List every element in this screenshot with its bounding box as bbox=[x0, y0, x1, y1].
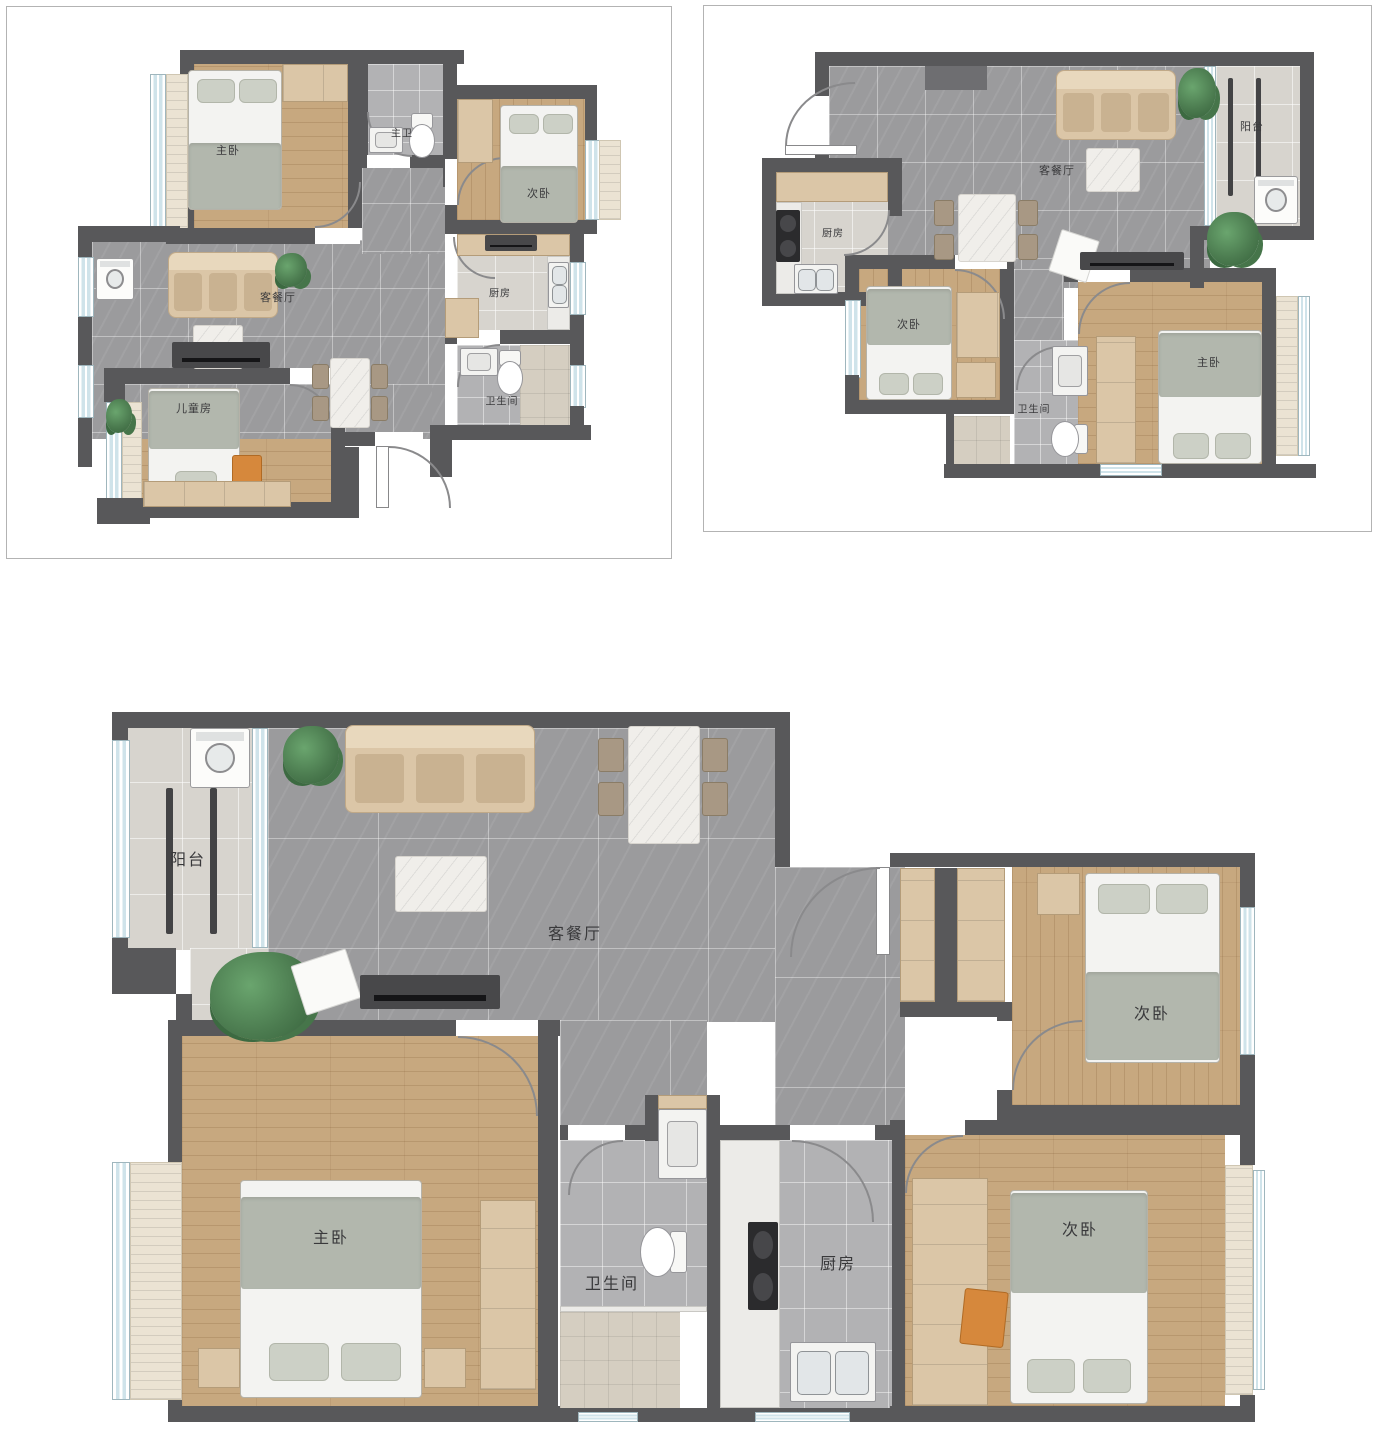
wardrobe-master bbox=[282, 64, 348, 102]
pillow bbox=[1215, 433, 1251, 459]
sofa-cushion bbox=[1138, 93, 1169, 132]
room-label-master: 主卧 bbox=[216, 142, 240, 158]
wall bbox=[168, 1036, 182, 1162]
stove bbox=[776, 210, 800, 262]
pillow bbox=[509, 114, 539, 134]
floor-plan-bottom: 阳台 客餐厅 主卧 卫生间 厨房 次卧 次卧 bbox=[0, 560, 1374, 1444]
floor-corridor bbox=[1014, 269, 1064, 351]
stove bbox=[485, 235, 537, 251]
wall bbox=[888, 172, 902, 216]
window-second-top bbox=[1240, 907, 1255, 1055]
wall bbox=[775, 853, 790, 867]
orange-chair bbox=[959, 1288, 1009, 1348]
wall bbox=[890, 853, 1255, 867]
room-label-bath: 卫生间 bbox=[1018, 401, 1051, 416]
wall bbox=[430, 425, 591, 440]
door-gap-bath bbox=[568, 1125, 625, 1140]
pillow bbox=[341, 1343, 401, 1381]
room-label-master-bath: 主卫 bbox=[391, 125, 413, 140]
room-label-kitchen: 厨房 bbox=[820, 1250, 856, 1274]
wall bbox=[890, 1406, 1255, 1422]
pillow bbox=[197, 79, 235, 103]
entry-door-arc bbox=[785, 82, 855, 146]
window-bath bbox=[1100, 464, 1162, 476]
kitchen-sink bbox=[790, 1342, 876, 1402]
bench-kids bbox=[143, 481, 291, 507]
dining-chair bbox=[934, 234, 954, 260]
door-gap-master bbox=[456, 1020, 540, 1036]
wall bbox=[1262, 268, 1276, 464]
sofa-back bbox=[346, 726, 534, 748]
window-bath bbox=[570, 365, 586, 408]
nightstand bbox=[1037, 873, 1080, 915]
dining-table bbox=[958, 194, 1016, 262]
stove bbox=[748, 1222, 778, 1310]
kitchen-sink bbox=[794, 264, 838, 294]
sofa-cushion bbox=[355, 754, 404, 804]
dining-chair bbox=[702, 738, 728, 772]
wall bbox=[707, 1095, 720, 1408]
window-master-bay bbox=[112, 1162, 130, 1400]
dining-table bbox=[628, 726, 700, 844]
wall bbox=[890, 1120, 905, 1135]
toilet-bath bbox=[495, 350, 523, 394]
wall bbox=[585, 99, 597, 140]
wall bbox=[1240, 867, 1255, 907]
bed-second-top bbox=[1085, 873, 1220, 1063]
wall bbox=[112, 728, 128, 740]
sofa bbox=[345, 725, 535, 813]
door-gap-second-top bbox=[997, 1021, 1012, 1090]
window-kitchen bbox=[570, 262, 586, 315]
wall bbox=[845, 400, 1014, 414]
wall bbox=[78, 226, 180, 242]
dining-chair bbox=[934, 200, 954, 226]
wardrobe-master bbox=[1096, 336, 1136, 464]
hall-cabinet bbox=[900, 868, 935, 1002]
wall bbox=[104, 368, 290, 384]
wall bbox=[445, 205, 457, 220]
room-label-master: 主卧 bbox=[313, 1224, 349, 1248]
sofa bbox=[1056, 70, 1176, 140]
room-label-kitchen: 厨房 bbox=[822, 225, 844, 240]
bay-sill-master bbox=[166, 74, 188, 237]
door-gap-entry bbox=[375, 432, 423, 446]
tv-console bbox=[360, 975, 500, 1009]
room-label-living: 客餐厅 bbox=[548, 920, 602, 944]
room-label-second: 次卧 bbox=[527, 185, 551, 201]
bed-master bbox=[1158, 330, 1262, 464]
pillow bbox=[1098, 884, 1150, 914]
wall bbox=[1240, 1120, 1255, 1165]
wall bbox=[762, 158, 902, 172]
drying-rail bbox=[210, 788, 217, 934]
washing-machine bbox=[190, 728, 250, 788]
window-living-upper bbox=[78, 257, 94, 317]
pillow bbox=[1083, 1359, 1131, 1393]
pillow bbox=[543, 114, 573, 134]
wall bbox=[166, 228, 315, 244]
window-master-bay bbox=[150, 74, 166, 237]
sofa-cushion bbox=[1101, 93, 1132, 132]
wall bbox=[78, 317, 92, 365]
wall bbox=[538, 1020, 558, 1408]
entry-door-leaf bbox=[785, 145, 857, 155]
nightstand bbox=[424, 1348, 466, 1388]
room-label-balcony: 阳台 bbox=[1240, 118, 1264, 134]
room-label-second-top: 次卧 bbox=[1134, 1000, 1170, 1024]
window-master-bay bbox=[1298, 296, 1310, 456]
sofa-cushion bbox=[1063, 93, 1094, 132]
pillow bbox=[239, 79, 277, 103]
kitchen-sink bbox=[548, 262, 569, 308]
dining-chair bbox=[702, 782, 728, 816]
shower-partition bbox=[560, 1306, 707, 1312]
room-label-second-bottom: 次卧 bbox=[1062, 1216, 1098, 1240]
wardrobe-master bbox=[480, 1200, 536, 1390]
dining-chair bbox=[312, 396, 329, 421]
pillow bbox=[879, 373, 909, 395]
tv-console bbox=[1080, 252, 1184, 270]
wall bbox=[900, 1002, 1012, 1017]
pillow bbox=[269, 1343, 329, 1381]
wall bbox=[935, 868, 957, 1002]
plant bbox=[1207, 212, 1259, 266]
sofa-back bbox=[1057, 71, 1175, 89]
pillow bbox=[1173, 433, 1209, 459]
tv-console bbox=[172, 342, 270, 368]
sink-vanity bbox=[658, 1109, 707, 1179]
drying-rail bbox=[1228, 78, 1233, 196]
cabinet-second bbox=[457, 99, 493, 163]
dining-chair bbox=[1018, 234, 1038, 260]
wall bbox=[445, 99, 457, 159]
floor-plan-top-right: 客餐厅 阳台 厨房 次卧 卫生间 主卧 bbox=[703, 5, 1372, 532]
wall bbox=[965, 1120, 1255, 1135]
wall bbox=[500, 330, 584, 344]
pillow bbox=[1027, 1359, 1075, 1393]
wardrobe-second-top bbox=[957, 868, 1005, 1002]
toilet bbox=[1052, 418, 1088, 458]
wall bbox=[845, 375, 859, 400]
sofa bbox=[168, 252, 278, 318]
sofa-cushion bbox=[209, 273, 237, 310]
dining-chair bbox=[598, 782, 624, 816]
pillow bbox=[913, 373, 943, 395]
window-second-bottom bbox=[1253, 1170, 1265, 1390]
sofa-back bbox=[169, 253, 277, 270]
dining-table bbox=[330, 358, 370, 428]
wardrobe-second bbox=[956, 292, 1000, 358]
blanket bbox=[1011, 1193, 1147, 1293]
wall bbox=[892, 1125, 905, 1408]
floor-plan-top-left: 主卧 主卫 次卧 客餐厅 厨房 卫生间 儿童房 bbox=[6, 6, 672, 559]
sofa-cushion bbox=[416, 754, 465, 804]
bay-sill-master bbox=[1276, 296, 1298, 456]
entry-door-leaf bbox=[376, 446, 389, 508]
wall bbox=[1190, 240, 1204, 288]
bed-master bbox=[188, 70, 282, 210]
wall bbox=[560, 1125, 568, 1140]
room-label-master: 主卧 bbox=[1197, 354, 1221, 370]
sofa-cushion bbox=[174, 273, 202, 310]
floor-shower bbox=[560, 1312, 680, 1408]
wall bbox=[720, 1125, 790, 1140]
sofa-cushion bbox=[476, 754, 525, 804]
sink-bath bbox=[1052, 346, 1088, 396]
room-label-bath: 卫生间 bbox=[486, 393, 519, 408]
window-living-lower bbox=[78, 365, 94, 418]
toilet bbox=[641, 1222, 687, 1280]
cabinet-second bbox=[956, 362, 996, 398]
bed-second bbox=[500, 105, 578, 223]
wall bbox=[570, 234, 584, 262]
washing-machine bbox=[1254, 176, 1298, 224]
wall bbox=[815, 52, 1302, 66]
door-gap-second bbox=[445, 159, 457, 205]
vanity-niche-counter bbox=[658, 1095, 707, 1109]
wall bbox=[645, 1095, 658, 1141]
pillow bbox=[1156, 884, 1208, 914]
dining-chair bbox=[598, 738, 624, 772]
window-balcony bbox=[112, 740, 130, 938]
window-balcony-divider bbox=[252, 728, 268, 948]
wall bbox=[1300, 52, 1314, 240]
wall bbox=[180, 50, 464, 64]
coffee-table bbox=[1086, 148, 1140, 192]
floor-shower bbox=[952, 416, 1010, 464]
wall bbox=[1240, 1055, 1255, 1107]
wall bbox=[168, 1406, 560, 1422]
wall bbox=[331, 447, 359, 518]
room-label-second: 次卧 bbox=[897, 316, 921, 332]
door-gap-kitchen bbox=[790, 1125, 875, 1140]
window-second bbox=[845, 300, 861, 378]
floor-corridor bbox=[362, 155, 445, 254]
room-label-kids: 儿童房 bbox=[176, 400, 212, 416]
sink-bath bbox=[460, 348, 498, 376]
wall bbox=[775, 712, 790, 867]
window-kitchen bbox=[755, 1412, 850, 1422]
bay-sill-second-bottom bbox=[1225, 1165, 1253, 1395]
wall bbox=[845, 269, 859, 303]
kitchen-counter bbox=[776, 172, 888, 202]
wall bbox=[78, 418, 92, 467]
wall bbox=[762, 172, 776, 306]
dining-chair bbox=[371, 396, 388, 421]
washing-machine bbox=[96, 258, 134, 300]
door-gap-master-bath bbox=[367, 155, 410, 168]
entry-cabinet bbox=[925, 66, 987, 90]
wall bbox=[1000, 1105, 1255, 1120]
wall bbox=[570, 345, 584, 367]
bed-second bbox=[866, 286, 952, 400]
bay-sill-master bbox=[130, 1162, 182, 1400]
wall bbox=[112, 948, 176, 994]
room-label-kitchen: 厨房 bbox=[489, 285, 511, 300]
kitchen-cabinet bbox=[445, 298, 479, 338]
wall bbox=[946, 414, 954, 464]
dining-chair bbox=[1018, 200, 1038, 226]
wall bbox=[1000, 269, 1014, 400]
wall bbox=[445, 85, 597, 99]
door-gap-entry bbox=[790, 853, 890, 867]
door-gap-second-bottom bbox=[905, 1120, 965, 1135]
room-label-bath: 卫生间 bbox=[585, 1270, 639, 1294]
door-gap-master bbox=[315, 228, 360, 244]
bed-master bbox=[240, 1180, 422, 1398]
wall bbox=[168, 1020, 456, 1036]
nightstand bbox=[198, 1348, 240, 1388]
coffee-table bbox=[395, 856, 487, 912]
floor-plans-page: 主卧 主卫 次卧 客餐厅 厨房 卫生间 儿童房 bbox=[0, 0, 1374, 1444]
dining-chair bbox=[371, 364, 388, 389]
bay-sill-second bbox=[599, 140, 621, 220]
dining-chair bbox=[312, 364, 329, 389]
floor-shower bbox=[520, 345, 577, 432]
window-bath bbox=[578, 1412, 638, 1422]
room-label-living: 客餐厅 bbox=[1039, 162, 1075, 178]
room-label-balcony: 阳台 bbox=[170, 846, 206, 870]
wall bbox=[997, 1005, 1012, 1021]
room-label-living: 客餐厅 bbox=[260, 289, 296, 305]
